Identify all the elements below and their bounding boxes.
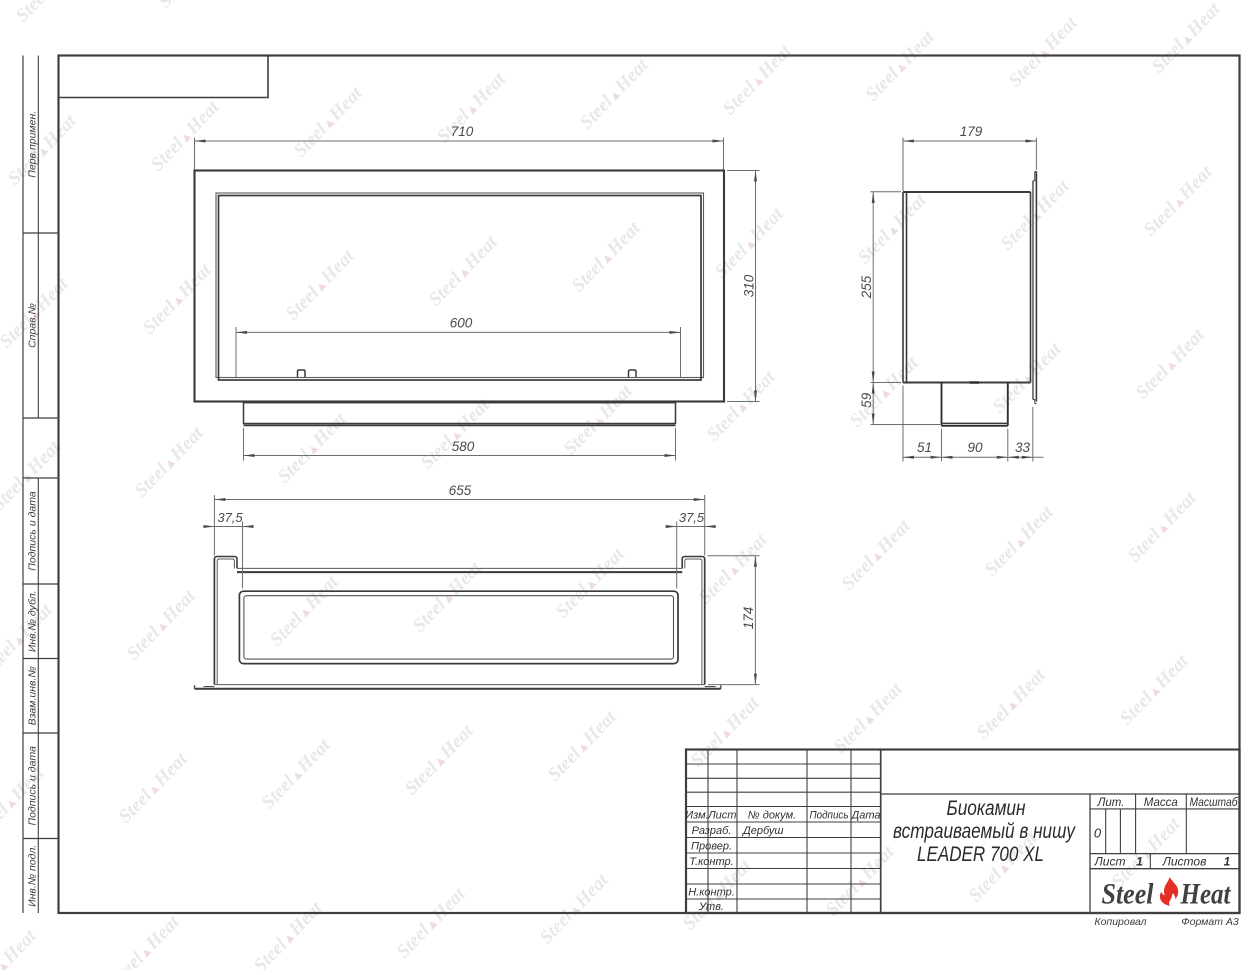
svg-text:Лит.: Лит. xyxy=(1097,797,1125,809)
svg-text:Биокамин: Биокамин xyxy=(947,797,1026,820)
svg-text:Подпись и дата: Подпись и дата xyxy=(27,491,39,571)
svg-text:Дербуш: Дербуш xyxy=(741,825,784,837)
svg-text:Формат А3: Формат А3 xyxy=(1181,916,1239,928)
svg-text:встраиваемый в нишу: встраиваемый в нишу xyxy=(893,820,1076,843)
svg-text:710: 710 xyxy=(451,124,474,139)
svg-text:Справ.№: Справ.№ xyxy=(27,303,39,348)
svg-text:Steel: Steel xyxy=(1102,878,1155,911)
svg-text:179: 179 xyxy=(960,124,983,139)
svg-text:Лист: Лист xyxy=(707,809,736,821)
svg-text:Подпись: Подпись xyxy=(810,809,849,821)
svg-text:LEADER 700 XL: LEADER 700 XL xyxy=(917,843,1044,866)
svg-text:Разраб.: Разраб. xyxy=(692,825,732,837)
svg-text:174: 174 xyxy=(741,607,756,630)
svg-text:Перв.примен.: Перв.примен. xyxy=(27,111,39,178)
svg-text:№ докум.: № докум. xyxy=(748,809,796,821)
svg-text:Масса: Масса xyxy=(1144,797,1178,809)
svg-text:Н.контр.: Н.контр. xyxy=(688,886,735,898)
svg-text:Инв.№ дубл.: Инв.№ дубл. xyxy=(27,590,39,652)
svg-text:Листов: Листов xyxy=(1162,854,1207,868)
svg-text:Копировал: Копировал xyxy=(1094,916,1146,928)
svg-text:0: 0 xyxy=(1094,826,1102,841)
svg-text:37,5: 37,5 xyxy=(217,510,243,525)
svg-text:655: 655 xyxy=(449,483,472,498)
svg-text:37,5: 37,5 xyxy=(679,510,705,525)
svg-text:Изм.: Изм. xyxy=(685,809,708,821)
svg-text:Подпись и дата: Подпись и дата xyxy=(27,746,39,826)
svg-text:Лист: Лист xyxy=(1094,854,1126,868)
svg-text:580: 580 xyxy=(452,439,475,454)
svg-text:Инв.№ подл.: Инв.№ подл. xyxy=(27,845,39,907)
svg-text:33: 33 xyxy=(1015,440,1031,455)
svg-text:Масштаб: Масштаб xyxy=(1190,797,1238,809)
svg-text:Дата: Дата xyxy=(849,809,880,821)
svg-text:Heat: Heat xyxy=(1180,878,1232,911)
svg-text:600: 600 xyxy=(450,315,473,330)
svg-text:Провер.: Провер. xyxy=(691,840,732,852)
svg-text:1: 1 xyxy=(1224,854,1231,868)
svg-text:Т.контр.: Т.контр. xyxy=(689,856,733,868)
svg-text:Взам.инв.№: Взам.инв.№ xyxy=(27,666,39,725)
svg-text:255: 255 xyxy=(859,275,874,299)
svg-text:51: 51 xyxy=(917,440,932,455)
svg-text:310: 310 xyxy=(741,274,756,297)
svg-text:Утв.: Утв. xyxy=(698,901,724,913)
svg-text:59: 59 xyxy=(859,392,874,408)
svg-text:90: 90 xyxy=(967,440,983,455)
svg-text:1: 1 xyxy=(1136,854,1143,868)
